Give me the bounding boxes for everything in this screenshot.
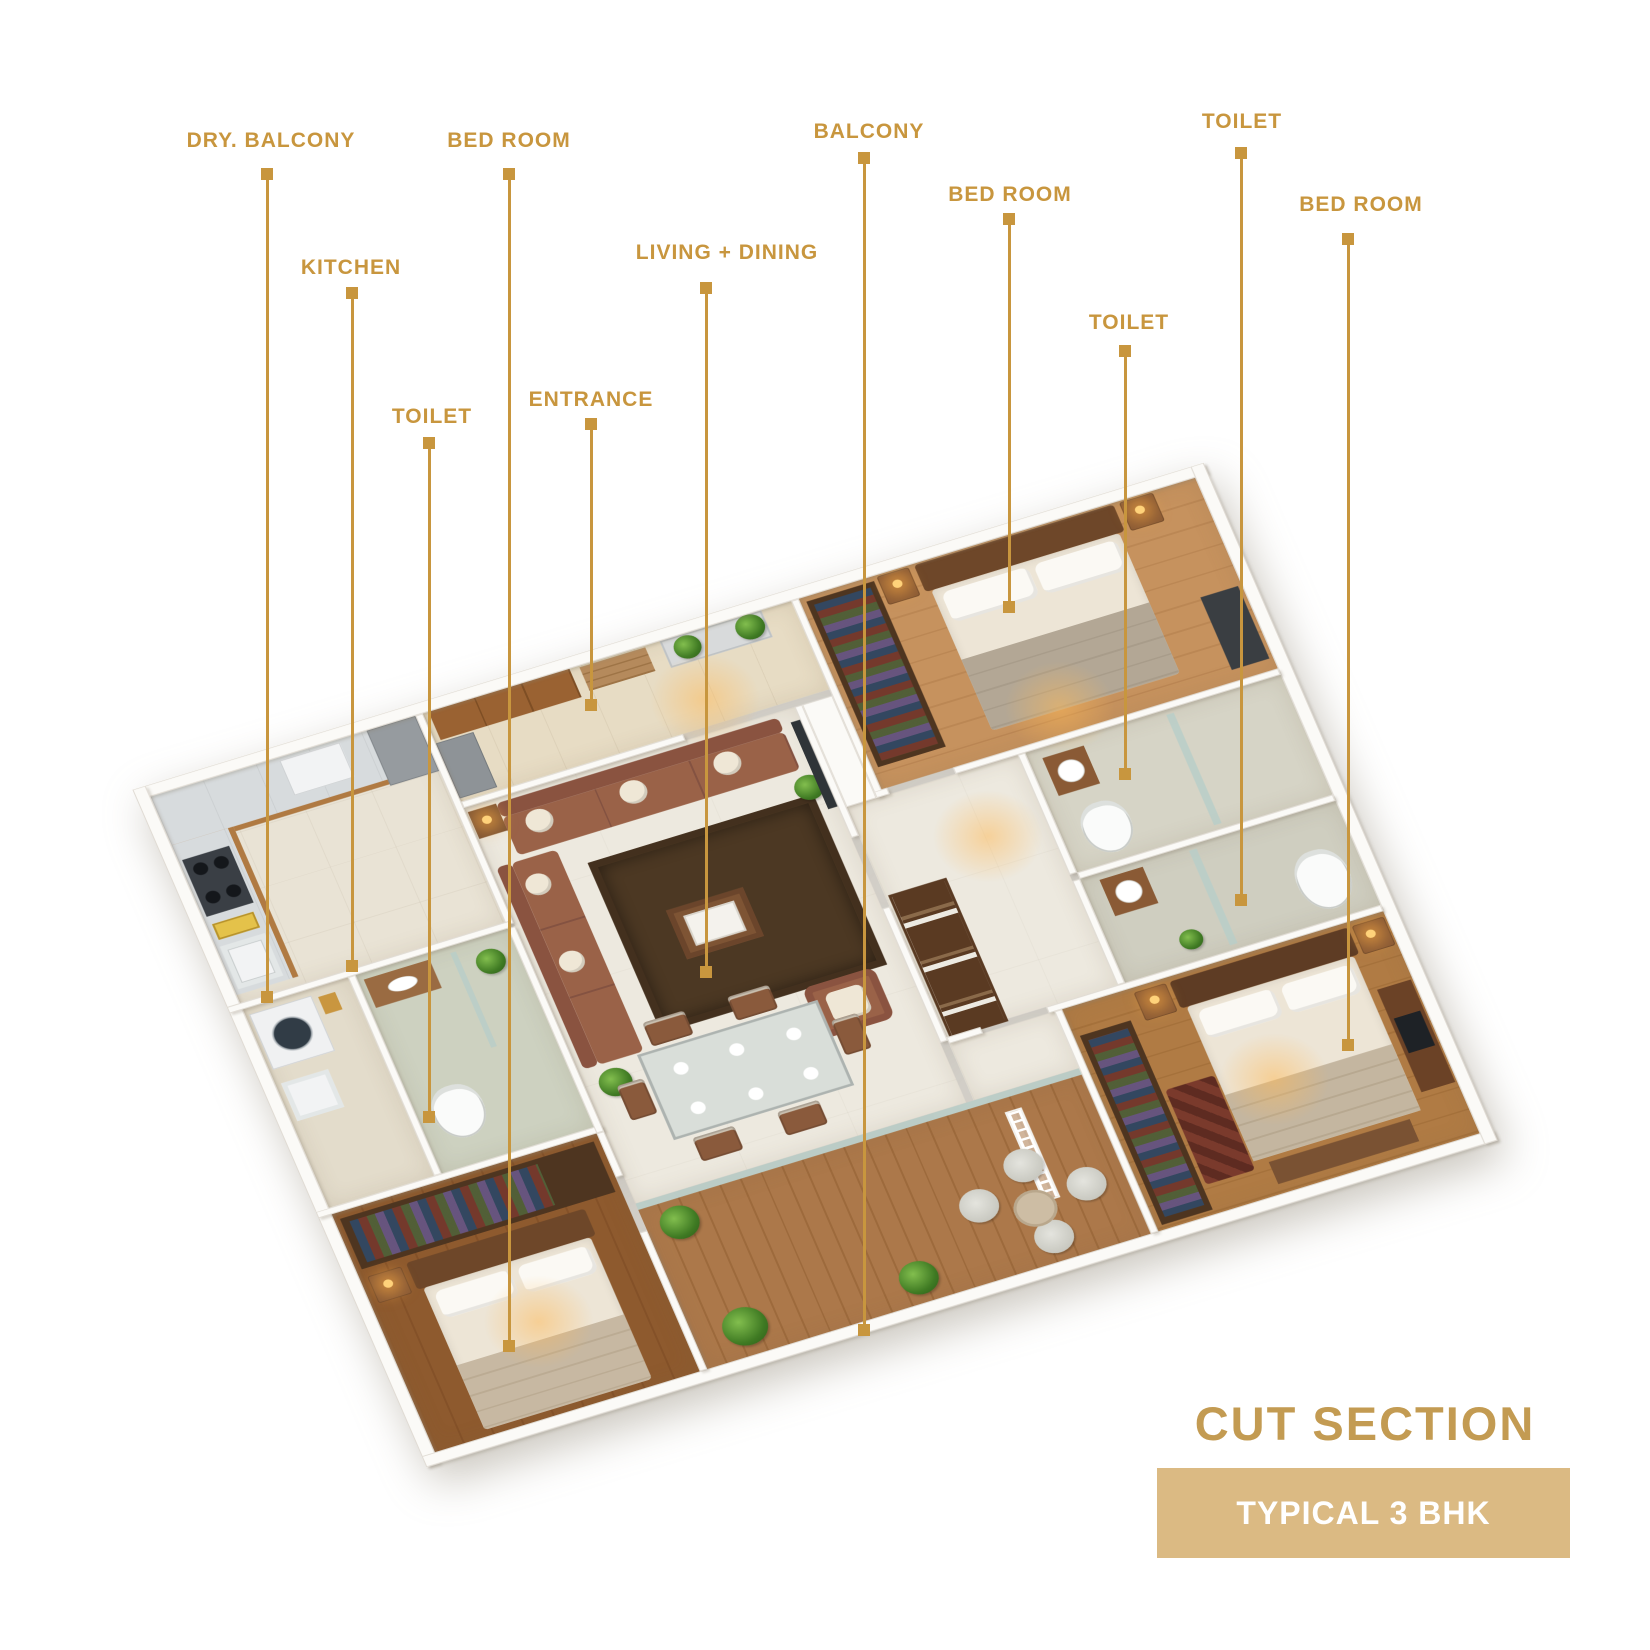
callout-marker [1119,768,1131,780]
callout-marker [423,437,435,449]
callout-marker [1235,147,1247,159]
callout-marker [858,1324,870,1336]
brochure-page: DRY. BALCONY KITCHEN TOILET BED ROOM ENT… [0,0,1650,1650]
callout-marker [346,287,358,299]
callout-marker [261,168,273,180]
callout-marker [1119,345,1131,357]
callout-marker [423,1111,435,1123]
callout-line [590,423,593,705]
callout-line [1124,350,1127,774]
room-label-dry-balcony: DRY. BALCONY [187,129,356,153]
callout-line [863,157,866,1330]
callout-line [1240,152,1243,900]
room-label-toilet-left: TOILET [392,405,472,429]
room-label-kitchen: KITCHEN [301,256,401,280]
callout-marker [1235,894,1247,906]
callout-marker [503,1340,515,1352]
callout-marker [700,966,712,978]
callout-marker [503,168,515,180]
room-label-bed-room-top: BED ROOM [948,183,1072,207]
callout-line [508,173,511,1346]
callout-marker [700,282,712,294]
room-label-entrance: ENTRANCE [529,388,654,412]
plan-type-badge: TYPICAL 3 BHK [1157,1468,1570,1558]
callout-marker [1003,601,1015,613]
callout-marker [346,960,358,972]
page-title: CUT SECTION [1163,1396,1567,1451]
room-label-toilet-middle: TOILET [1089,311,1169,335]
callout-marker [1003,213,1015,225]
callout-marker [261,991,273,1003]
room-label-bed-room-left: BED ROOM [447,129,571,153]
callout-marker [585,699,597,711]
callout-line [1008,218,1011,607]
callout-marker [858,152,870,164]
callout-line [428,442,431,1117]
callout-line [266,173,269,997]
room-label-toilet-right: TOILET [1202,110,1282,134]
floor-plan-3d [245,535,1385,1395]
callout-marker [1342,1039,1354,1051]
callout-line [351,292,354,966]
room-label-balcony: BALCONY [814,120,925,144]
floor-plan-projection [132,463,1497,1468]
callout-marker [1342,233,1354,245]
callout-line [1347,238,1350,1045]
callout-marker [585,418,597,430]
callout-line [705,287,708,972]
room-label-living-dining: LIVING + DINING [636,241,818,265]
room-label-bed-room-right: BED ROOM [1299,193,1423,217]
